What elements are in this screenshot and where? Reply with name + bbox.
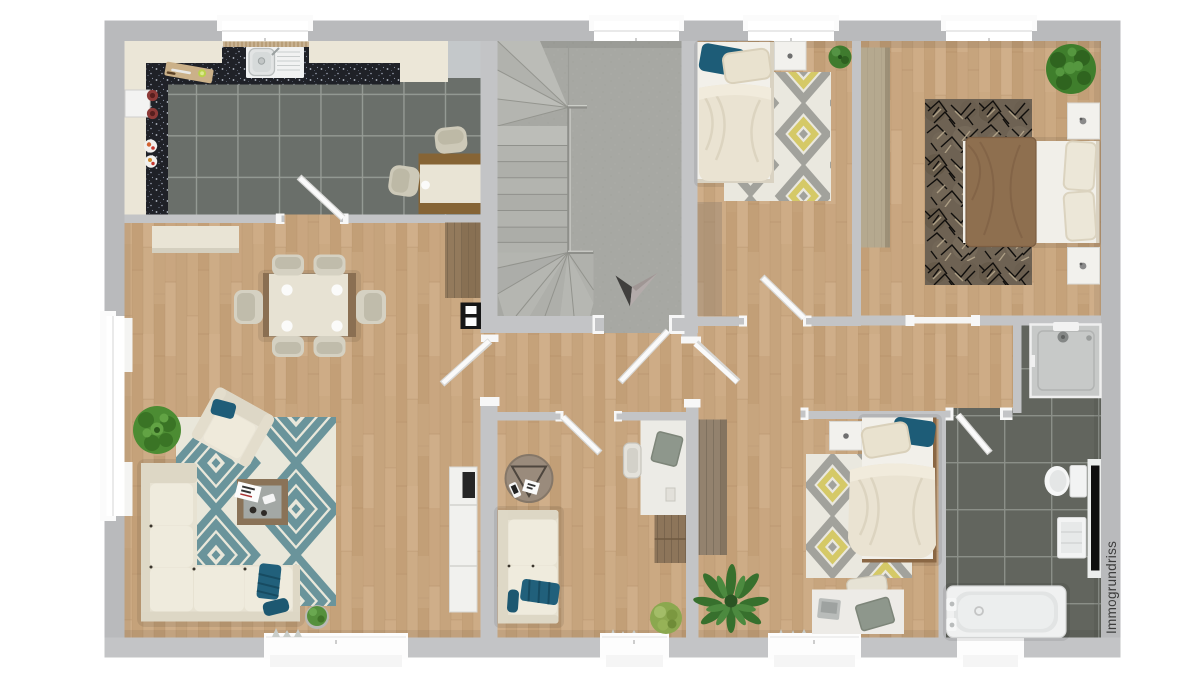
svg-text:Immogrundriss: Immogrundriss (1104, 541, 1119, 634)
